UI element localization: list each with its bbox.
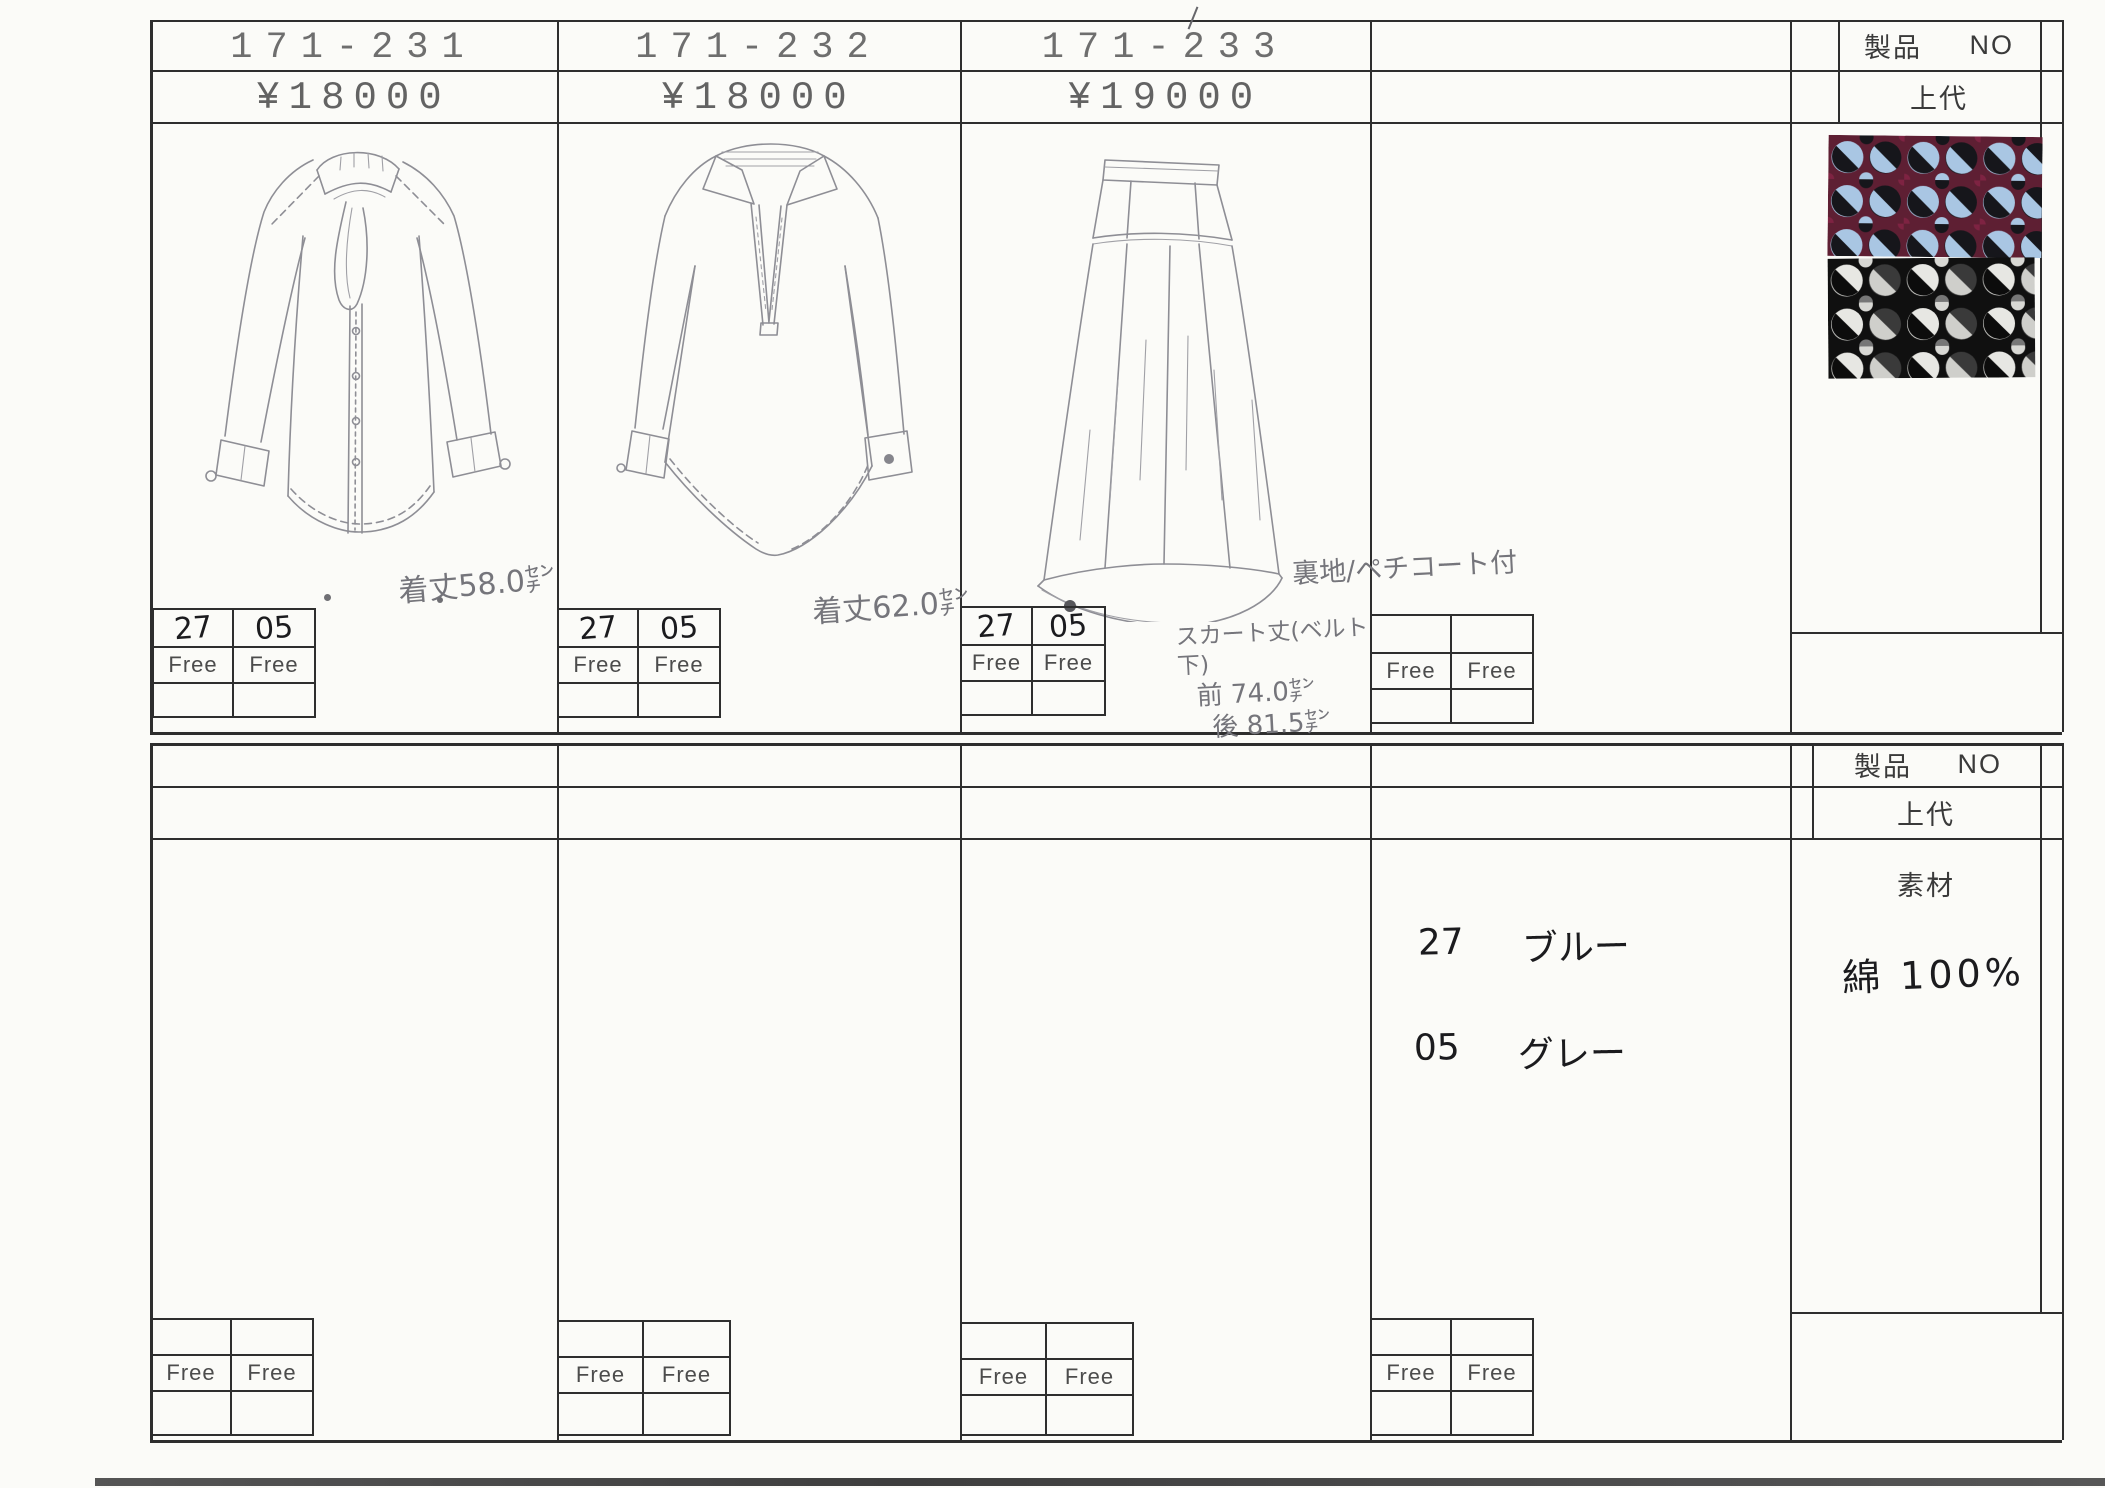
flared-skirt-sketch (1026, 138, 1360, 622)
empty-cell (1452, 690, 1532, 722)
empty-cell (152, 1320, 232, 1356)
retail-price-header-bottom: 上代 (1812, 786, 2040, 838)
bow-blouse-sketch (193, 124, 527, 576)
empty-cell (559, 1322, 644, 1358)
color-legend-row: 27 ブルー (1417, 917, 1630, 975)
empty-cell (1372, 616, 1452, 654)
size-free-cell: Free (559, 648, 639, 684)
color-code-cell: 05 (1033, 608, 1104, 646)
size-free-cell: Free (232, 1356, 312, 1392)
grid-line (2062, 743, 2064, 1440)
length-note: 着丈62.0㌢ (811, 577, 970, 632)
color-code-cell: 27 (559, 610, 639, 648)
bottom-size-table-2: Free Free (557, 1320, 731, 1436)
size-free-cell: Free (1452, 1356, 1532, 1392)
color-code: 05 (659, 609, 700, 647)
product-number: 171-233 (960, 27, 1370, 69)
grid-line (1790, 1312, 2062, 1314)
material-header: 素材 (1812, 864, 2040, 903)
material-label: 素材 (1897, 871, 1955, 901)
size-free-cell: Free (234, 648, 314, 684)
product-price: ¥19000 (960, 76, 1370, 120)
size-color-table-3: 27 05 Free Free (960, 606, 1106, 716)
color-name: ブルー (1521, 917, 1630, 972)
product-no-header: 製品 NO (1838, 20, 2040, 70)
size-free-cell: Free (1047, 1360, 1132, 1396)
bottom-size-table-3: Free Free (960, 1322, 1134, 1436)
empty-cell (962, 1324, 1047, 1360)
empty-cell (962, 682, 1033, 714)
retail-label: 上代 (1910, 77, 1968, 116)
color-code: 27 (173, 609, 214, 647)
product-number: 171-232 (557, 27, 960, 69)
color-code: 05 (1414, 1027, 1461, 1080)
product-price: ¥18000 (150, 76, 557, 120)
grid-line (1790, 20, 1792, 732)
empty-cell (1372, 1320, 1452, 1356)
empty-cell (1047, 1324, 1132, 1360)
empty-cell (152, 1392, 232, 1434)
size-free-cell: Free (154, 648, 234, 684)
grid-line (150, 732, 2062, 735)
product-price: ¥18000 (557, 76, 960, 120)
empty-cell (232, 1392, 312, 1434)
color-code: 27 (578, 609, 619, 647)
size-free-cell: Free (639, 648, 719, 684)
grid-line (150, 1440, 2062, 1443)
empty-cell (234, 684, 314, 716)
color-code-cell: 27 (962, 608, 1033, 646)
color-name: グレー (1517, 1024, 1626, 1078)
pencil-dot (437, 597, 443, 603)
size-free-cell: Free (962, 1360, 1047, 1396)
grid-line (150, 838, 2062, 840)
grid-line (1790, 743, 1792, 1440)
retail-label: 上代 (1897, 793, 1955, 832)
grid-line (2040, 743, 2042, 1312)
size-table-4: Free Free (1370, 614, 1534, 724)
color-code: 27 (1417, 922, 1464, 975)
empty-cell (1452, 1392, 1532, 1434)
color-code-cell: 05 (234, 610, 314, 648)
size-free-cell: Free (1372, 1356, 1452, 1392)
empty-cell (644, 1322, 729, 1358)
size-free-cell: Free (1452, 654, 1532, 690)
grid-line (150, 70, 2062, 72)
empty-cell (1452, 1320, 1532, 1356)
empty-cell (154, 684, 234, 716)
size-color-table-2: 27 05 Free Free (557, 608, 721, 718)
empty-cell (962, 1396, 1047, 1434)
bottom-size-table-4: Free Free (1370, 1318, 1534, 1436)
grid-line (1790, 632, 2062, 634)
color-code: 05 (1048, 607, 1089, 645)
grid-line (150, 786, 2062, 788)
scan-paper-edge (95, 1478, 2105, 1486)
size-free-cell: Free (962, 646, 1033, 682)
color-legend-row: 05 グレー (1414, 1024, 1627, 1080)
size-free-cell: Free (152, 1356, 232, 1392)
tunic-shirt-sketch (606, 132, 936, 564)
grid-line (2040, 20, 2042, 632)
size-free-cell: Free (1033, 646, 1104, 682)
empty-cell (1047, 1396, 1132, 1434)
retail-price-header: 上代 (1838, 70, 2040, 122)
empty-cell (559, 1394, 644, 1434)
empty-cell (1033, 682, 1104, 714)
fabric-swatch-blue-bordeaux (1827, 135, 2042, 258)
color-code-cell: 27 (154, 610, 234, 648)
grid-line (150, 20, 2062, 22)
size-free-cell: Free (644, 1358, 729, 1394)
bottom-size-table-1: Free Free (150, 1318, 314, 1436)
color-code: 27 (976, 607, 1017, 645)
spec-sheet-scan: 171-231 171-232 171-233 ¥18000 ¥18000 ¥1… (0, 0, 2105, 1488)
color-code-cell: 05 (639, 610, 719, 648)
grid-line (150, 743, 2062, 746)
empty-cell (1452, 616, 1532, 654)
product-label: 製品 (1864, 26, 1922, 65)
product-label: 製品 (1854, 745, 1912, 784)
product-number: 171-231 (150, 27, 557, 69)
size-free-cell: Free (559, 1358, 644, 1394)
empty-cell (559, 684, 639, 716)
skirt-length-note: スカート丈(ベルト下) 前 74.0㌢ 後 81.5㌢ (1175, 612, 1401, 746)
material-value: 綿 100% (1841, 941, 2026, 1002)
fabric-swatch-black-white (1828, 257, 2036, 378)
pencil-dot (324, 594, 331, 601)
empty-cell (644, 1394, 729, 1434)
no-label: NO (1970, 30, 2015, 61)
empty-cell (639, 684, 719, 716)
grid-line (2062, 20, 2064, 732)
color-code: 05 (254, 609, 295, 647)
size-free-cell: Free (1372, 654, 1452, 690)
empty-cell (232, 1320, 312, 1356)
product-no-header-bottom: 製品 NO (1812, 743, 2040, 786)
no-label: NO (1958, 749, 2003, 780)
empty-cell (1372, 1392, 1452, 1434)
empty-cell (1372, 690, 1452, 722)
size-color-table-1: 27 05 Free Free (152, 608, 316, 718)
